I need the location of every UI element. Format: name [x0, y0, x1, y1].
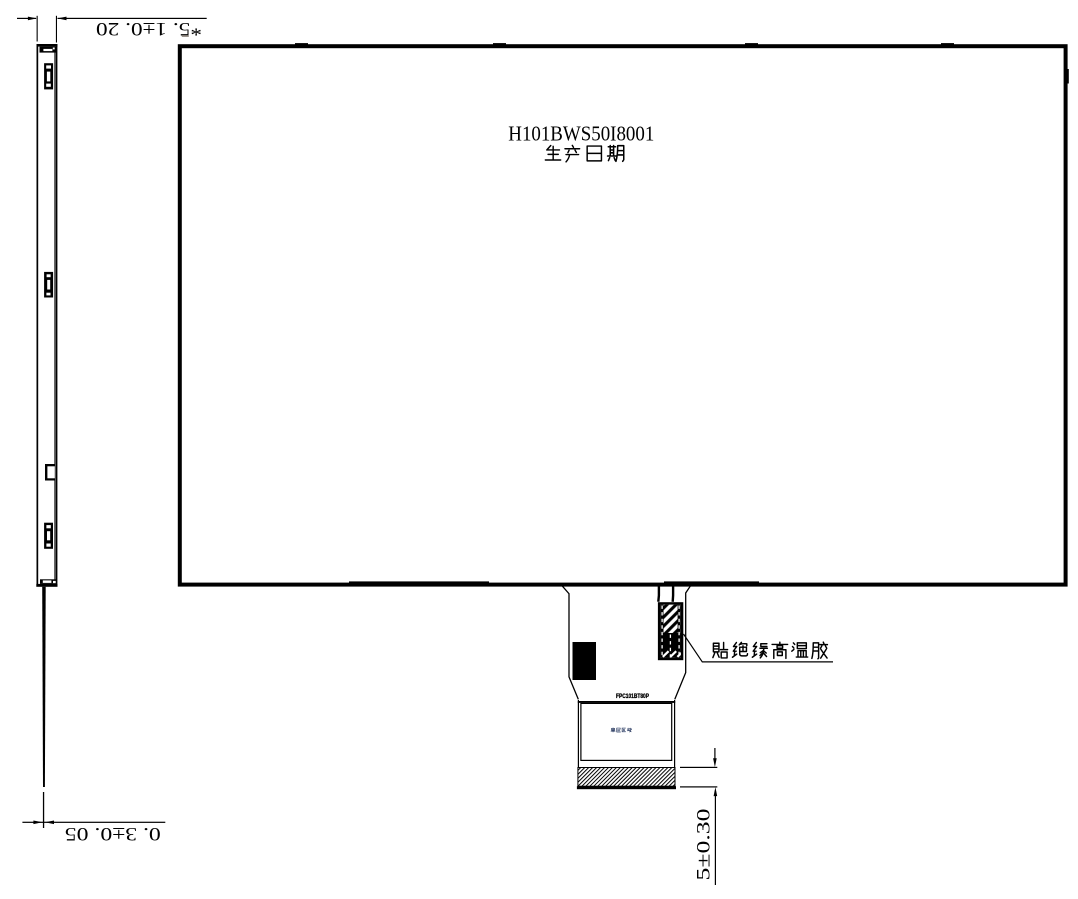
svg-text:0. 3±0. 05: 0. 3±0. 05: [65, 823, 161, 844]
svg-text:FPC101BT80P: FPC101BT80P: [616, 694, 649, 700]
svg-text:H101BWS50I8001: H101BWS50I8001: [508, 122, 654, 146]
svg-text:5±0.30: 5±0.30: [694, 809, 715, 881]
